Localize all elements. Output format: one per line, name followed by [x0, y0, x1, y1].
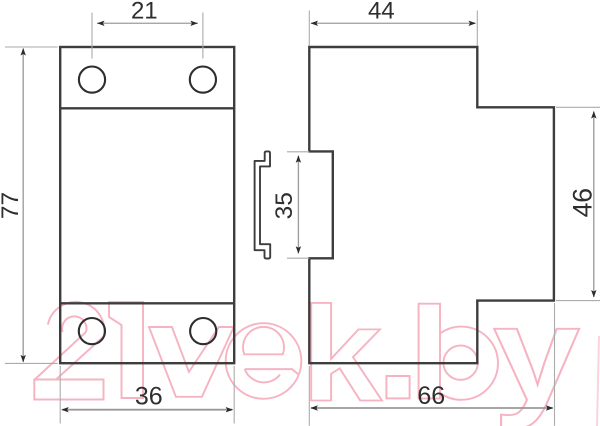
svg-text:44: 44 [368, 0, 395, 25]
svg-text:k: k [301, 278, 383, 426]
svg-text:46: 46 [568, 188, 598, 217]
svg-text:77: 77 [0, 192, 24, 219]
svg-text:35: 35 [271, 192, 298, 219]
svg-text:36: 36 [135, 383, 163, 411]
svg-text:21: 21 [131, 0, 158, 25]
svg-text:66: 66 [417, 382, 445, 410]
